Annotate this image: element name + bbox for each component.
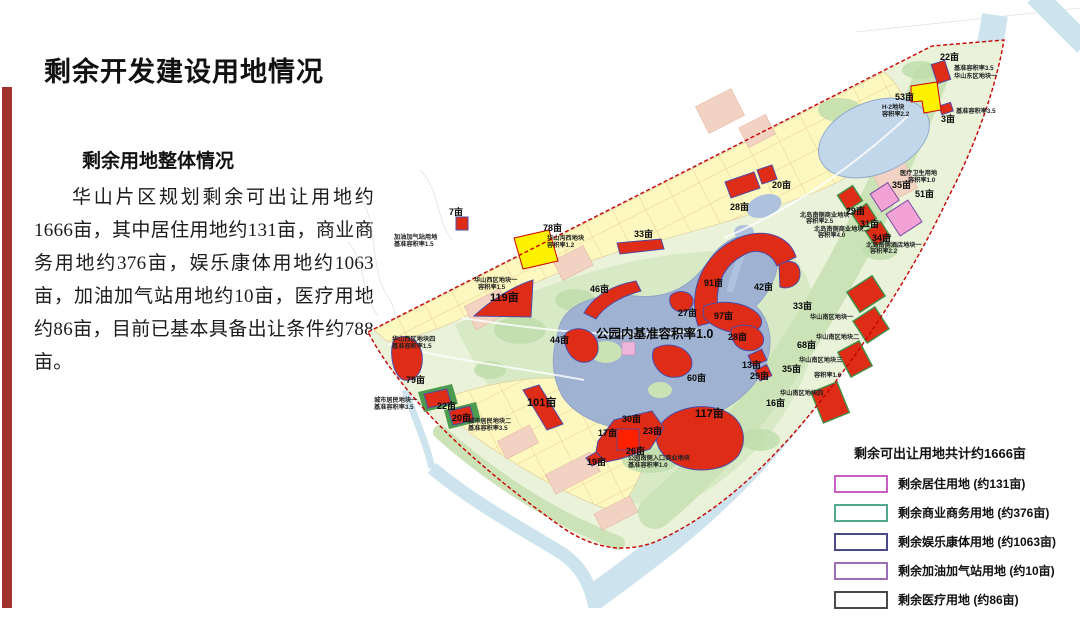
annotation: 基准容积率3.5 — [955, 107, 996, 115]
parcel-label-w78: 78亩 — [543, 222, 562, 233]
legend-label: 剩余医疗用地 (约86亩) — [898, 591, 1019, 608]
parcel-label-c91: 91亩 — [704, 277, 723, 288]
annotation: 华山南区地块一 — [810, 313, 854, 321]
legend-label: 剩余加油加气站用地 (约10亩) — [898, 562, 1055, 579]
parcel-label-se35: 35亩 — [782, 363, 801, 374]
annotation: 华山东区地块一 — [954, 72, 998, 80]
annotation: 医疗卫生用地 — [900, 169, 938, 177]
parcel-label-ne3: 3亩 — [941, 113, 955, 124]
annotation: 城市居民地块二 — [468, 417, 511, 425]
parcel-label-sw101: 101亩 — [527, 395, 556, 409]
legend-item-gas-station: 剩余加油加气站用地 (约10亩) — [834, 562, 1080, 579]
parcel-label-s28: 28亩 — [728, 331, 747, 342]
park-far-note: 公园内基准容积率1.0 — [596, 326, 713, 341]
legend-label: 剩余商业商务用地 (约376亩) — [898, 504, 1049, 521]
parcel-label-n28: 28亩 — [730, 201, 749, 212]
legend-item-residential: 剩余居住用地 (约131亩) — [834, 475, 1080, 492]
annotation: 容积率4.0 — [817, 231, 846, 239]
parcel-label-w7: 7亩 — [449, 206, 463, 217]
legend-item-commercial: 剩余商业商务用地 (约376亩) — [834, 504, 1080, 521]
parcel-label-c44: 44亩 — [550, 334, 569, 345]
map-legend: 剩余可出让用地共计约1666亩 剩余居住用地 (约131亩) 剩余商业商务用地 … — [834, 443, 1080, 620]
legend-item-medical: 剩余医疗用地 (约86亩) — [834, 591, 1080, 608]
parcel-label-s117: 117亩 — [695, 406, 724, 420]
annotation: 华山南区地块二 — [816, 333, 859, 341]
legend-label: 剩余娱乐康体用地 (约1063亩) — [898, 533, 1056, 550]
parcel-label-ne53: 53亩 — [895, 91, 914, 102]
parcel-label-w79: 79亩 — [406, 374, 425, 385]
annotation: 华山南区地块三 — [799, 356, 842, 364]
medical-swatch — [834, 591, 888, 609]
annotation: 容积率2.2 — [869, 247, 898, 255]
annotation: 容积率2.2 — [881, 110, 910, 118]
parcel-label-c97: 97亩 — [714, 310, 733, 321]
annotation: 基准容积率3.5 — [467, 424, 508, 432]
gas-station-swatch — [834, 562, 888, 580]
annotation: 华山南区地块四 — [780, 389, 823, 397]
parcel-label-w119: 119亩 — [490, 290, 519, 304]
recreation-swatch — [834, 533, 888, 551]
annotation: 公园南侧入口商业地块 — [628, 454, 691, 462]
parcel-label-ne22: 22亩 — [940, 51, 959, 62]
annotation: H-2地块 — [882, 103, 905, 111]
annotation: 华山西区地块四 — [392, 335, 435, 343]
annotation: 容积率1.6 — [813, 371, 842, 379]
lake-pink-parcel — [622, 342, 635, 355]
parcel-label-s23: 23亩 — [643, 425, 662, 436]
parcel-label-sw22: 22亩 — [437, 400, 456, 411]
annotation: 基准容积率3.5 — [373, 403, 414, 411]
parcel-label-s19: 19亩 — [587, 456, 606, 467]
parcel-label-c42: 42亩 — [754, 281, 773, 292]
parcel-label-s17: 17亩 — [598, 427, 617, 438]
parcel-label-c13: 13亩 — [742, 359, 761, 370]
legend-label: 剩余居住用地 (约131亩) — [898, 475, 1025, 492]
annotation: 基准容积率1.5 — [391, 342, 432, 350]
parcel-label-med51: 51亩 — [915, 188, 934, 199]
parcel-label-c29: 29亩 — [750, 370, 769, 381]
annotation: 基准容积率3.5 — [953, 64, 994, 72]
annotation: 加油加气站用地 — [393, 233, 438, 241]
annotation: 华山西区地块一 — [474, 276, 518, 284]
annotation: 容积率1.5 — [477, 283, 506, 291]
annotation: 容积率1.0 — [907, 176, 936, 184]
annotation: 容积率1.2 — [546, 241, 575, 249]
residential-swatch — [834, 475, 888, 493]
annotation: 华山沟西地块 — [547, 234, 585, 242]
annotation: 基准容积率1.5 — [393, 240, 434, 248]
annotation: 城市居民地块一 — [374, 396, 418, 404]
annotation: 基准容积率1.0 — [627, 461, 668, 469]
parcel-label-s30: 30亩 — [622, 413, 641, 424]
legend-title: 剩余可出让用地共计约1666亩 — [854, 443, 1080, 462]
annotation: 容积率2.5 — [805, 217, 834, 225]
parcel-label-se33: 33亩 — [793, 300, 812, 311]
parcel-label-n20: 20亩 — [772, 179, 791, 190]
parcel-label-c60: 60亩 — [687, 372, 706, 383]
legend-item-recreation: 剩余娱乐康体用地 (约1063亩) — [834, 533, 1080, 550]
parcel-label-c46: 46亩 — [590, 283, 609, 294]
parcel-label-se16: 16亩 — [766, 397, 785, 408]
commercial-swatch — [834, 504, 888, 522]
parcel-label-c27: 27亩 — [678, 307, 697, 318]
parcel-label-se68: 68亩 — [797, 339, 816, 350]
parcel-label-mid33: 33亩 — [634, 228, 653, 239]
